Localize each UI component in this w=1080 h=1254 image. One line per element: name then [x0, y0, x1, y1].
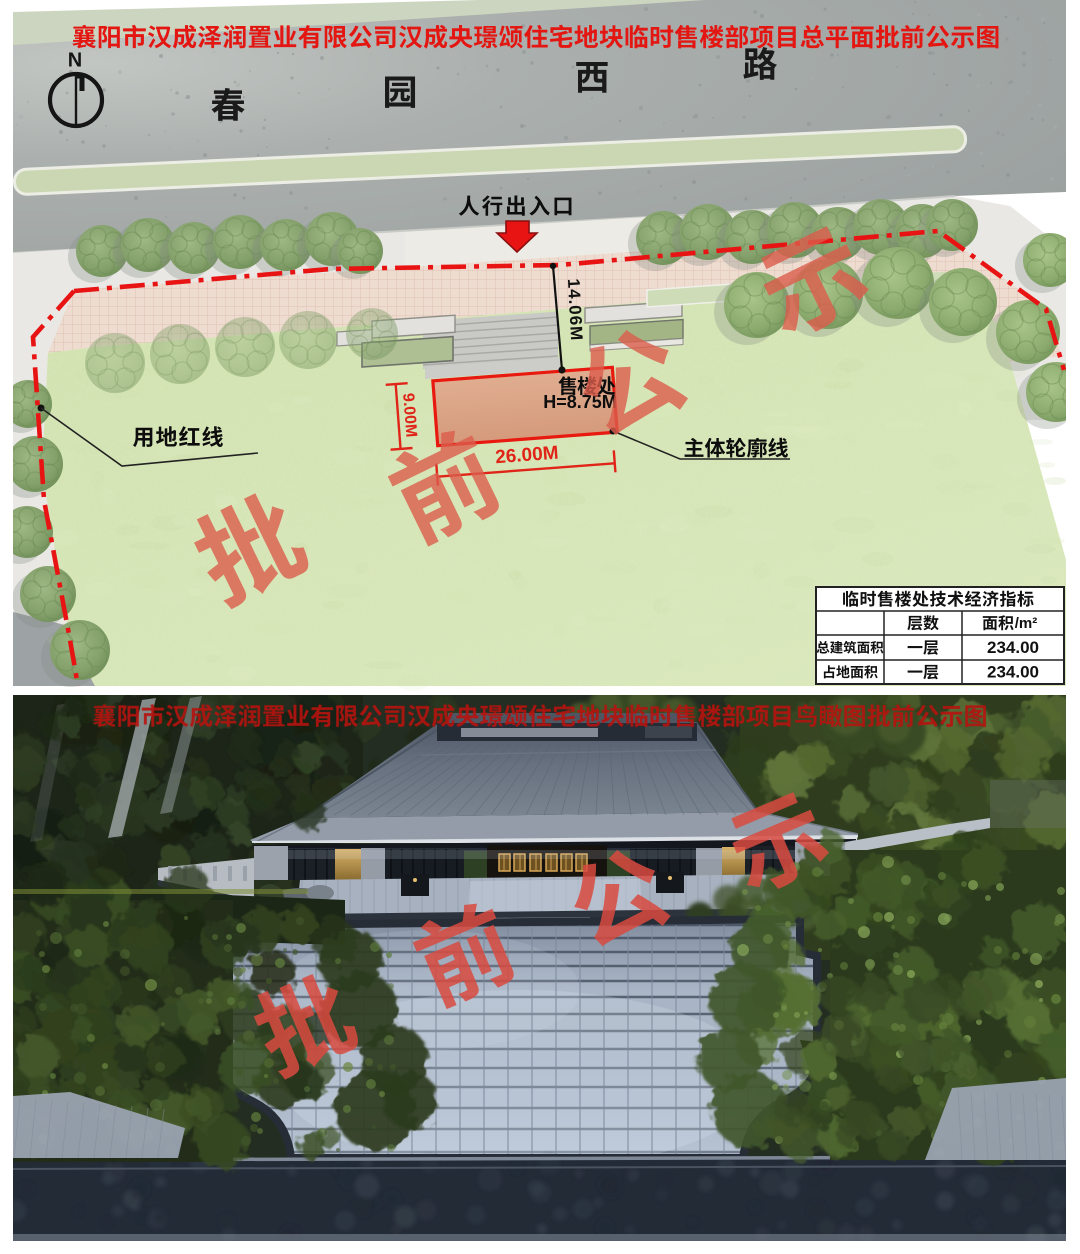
svg-text:9.00M: 9.00M — [399, 392, 419, 438]
svg-text:N: N — [68, 49, 82, 71]
svg-text:H=8.75M: H=8.75M — [543, 392, 617, 412]
svg-text:234.00: 234.00 — [987, 638, 1039, 657]
svg-text:14.06M: 14.06M — [564, 278, 586, 342]
svg-text:/m²: /m² — [1015, 615, 1038, 632]
svg-text:234.00: 234.00 — [987, 662, 1039, 681]
